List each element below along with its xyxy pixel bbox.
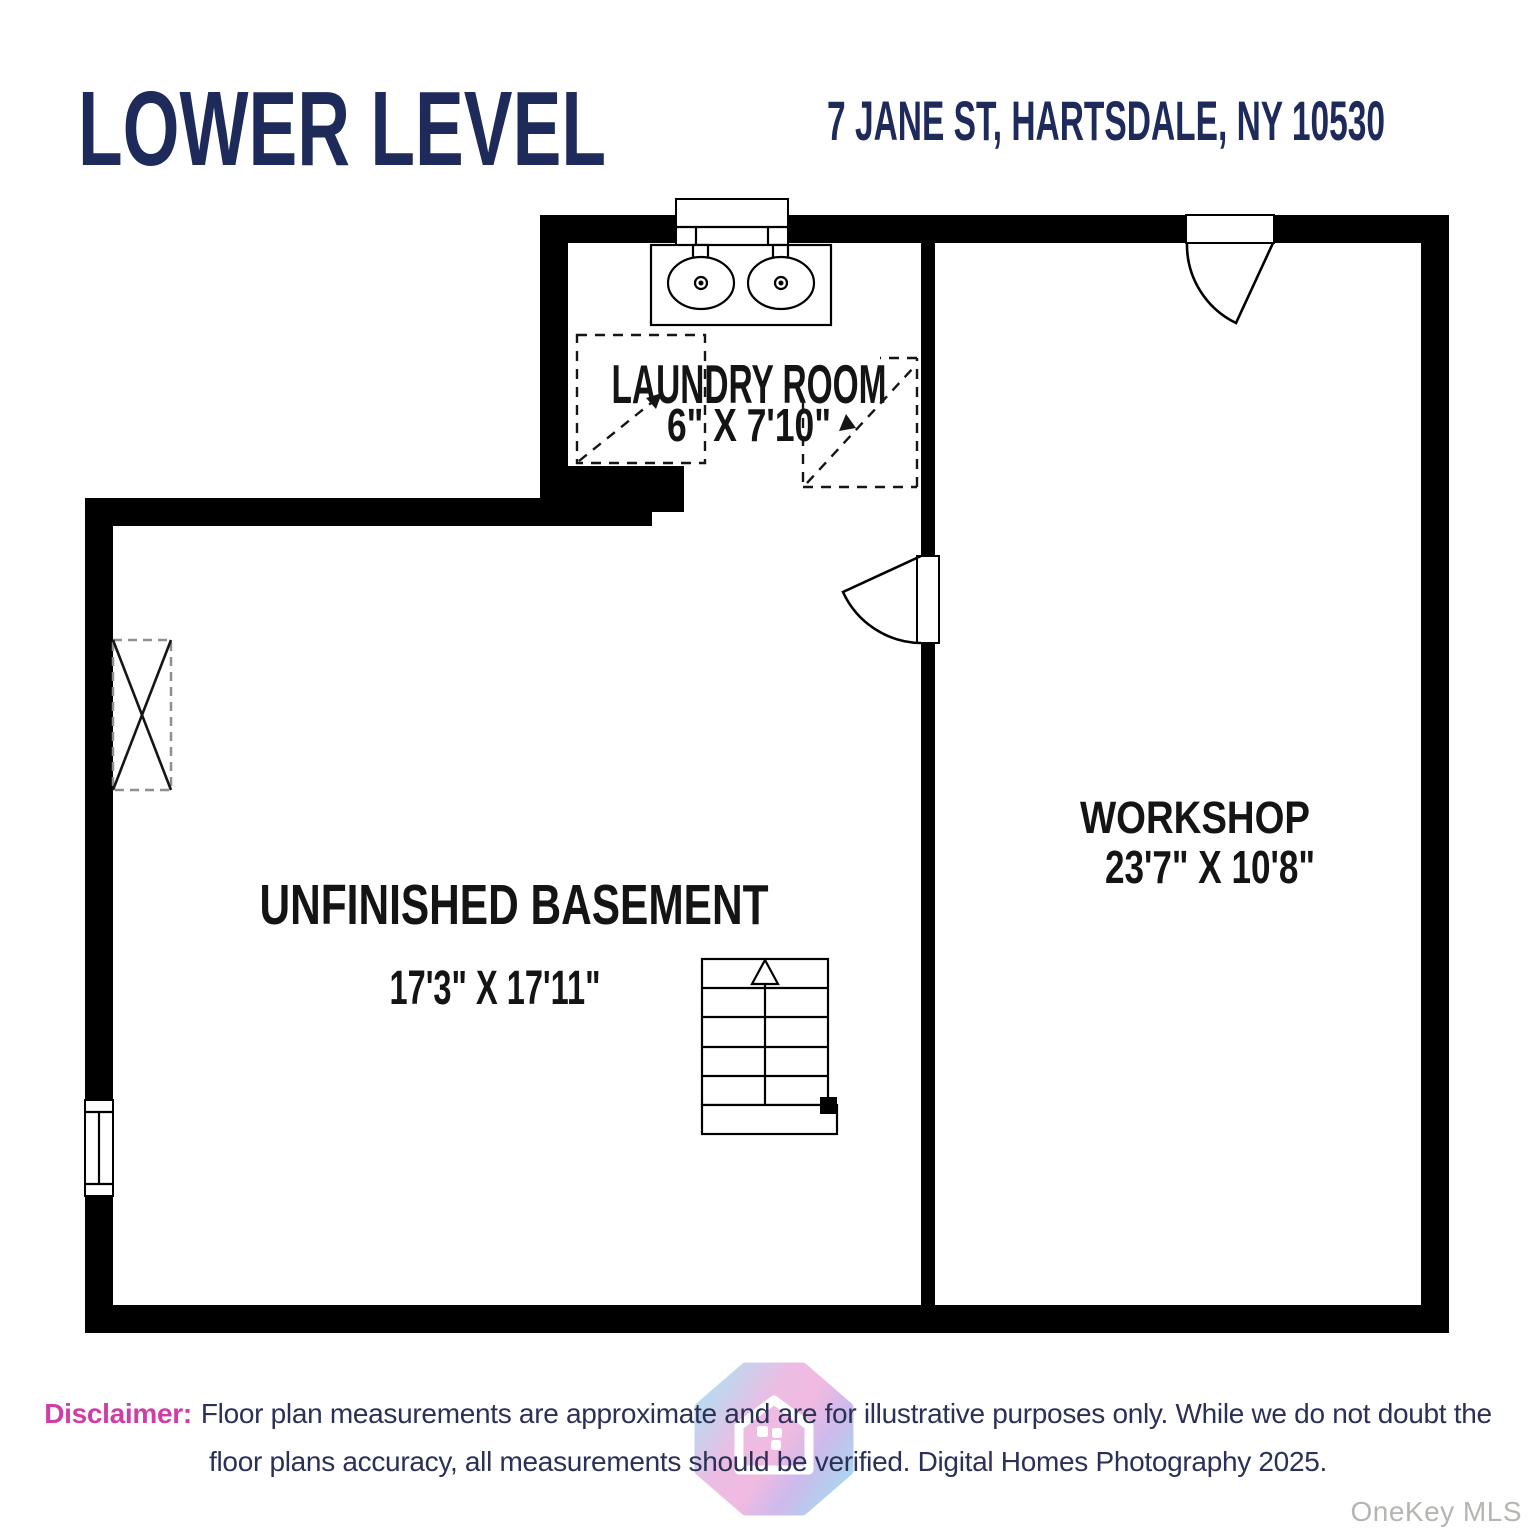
door-opening — [917, 556, 939, 643]
disclaimer-text-2: floor plans accuracy, all measurements s… — [209, 1446, 1327, 1477]
x-box-utility-icon — [113, 640, 171, 790]
floorplan-drawing: LOWER LEVEL 7 JANE ST, HARTSDALE, NY 105… — [0, 0, 1536, 1536]
newel-post — [820, 1097, 837, 1114]
room-dims-laundry: 6" X 7'10" — [667, 399, 831, 451]
stairs — [702, 959, 837, 1134]
onekey-mls-watermark: OneKey MLS — [1350, 1496, 1522, 1528]
property-address: 7 JANE ST, HARTSDALE, NY 10530 — [827, 89, 1385, 152]
basement-workshop-door — [843, 556, 939, 643]
house-badge-icon — [690, 1358, 854, 1518]
disclaimer-text-1: Floor plan measurements are approximate … — [201, 1398, 1492, 1429]
wall-basement-top — [85, 498, 652, 526]
room-label-basement: UNFINISHED BASEMENT — [260, 873, 769, 937]
double-sink-vanity-icon — [651, 245, 831, 325]
floorplan-page: LOWER LEVEL 7 JANE ST, HARTSDALE, NY 105… — [0, 0, 1536, 1536]
wall-step-tab — [652, 498, 684, 512]
arrow-down-left-icon — [839, 414, 856, 431]
stair-landing — [702, 1105, 837, 1134]
room-dims-workshop: 23'7" X 10'8" — [1105, 841, 1315, 893]
disclaimer-line-2: floor plans accuracy, all measurements s… — [0, 1446, 1536, 1478]
basement-window — [85, 1100, 113, 1196]
wall-bottom — [85, 1305, 1449, 1333]
disclaimer-line-1: Disclaimer:Floor plan measurements are a… — [0, 1398, 1536, 1430]
door-opening — [1186, 215, 1274, 243]
door-swing-arc-icon — [843, 556, 921, 643]
page-title: LOWER LEVEL — [78, 70, 606, 188]
workshop-entry-door — [1186, 215, 1274, 323]
wall-right — [1421, 215, 1449, 1333]
room-dims-basement: 17'3" X 17'11" — [390, 962, 601, 1015]
wall-laundry-left — [540, 215, 568, 498]
door-swing-arc-icon — [1187, 243, 1273, 323]
disclaimer-label: Disclaimer: — [44, 1398, 192, 1429]
wall-divider — [921, 243, 935, 1305]
wall-left — [85, 498, 113, 1333]
laundry-window — [676, 199, 788, 245]
wall-laundry-step — [540, 466, 684, 498]
digital-homes-logo — [690, 1358, 854, 1518]
room-label-workshop: WORKSHOP — [1080, 792, 1310, 843]
